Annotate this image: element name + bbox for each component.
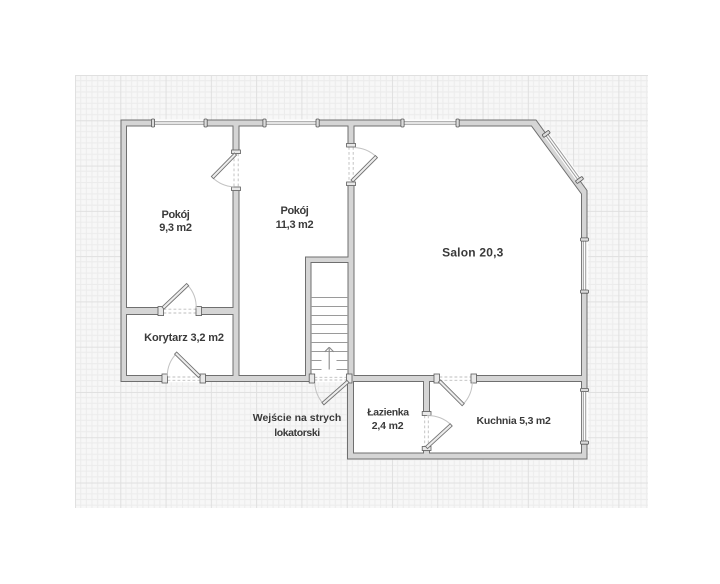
svg-text:Kuchnia 5,3 m2: Kuchnia 5,3 m2 [476, 415, 551, 427]
svg-text:Pokój: Pokój [281, 205, 309, 217]
svg-text:11,3 m2: 11,3 m2 [276, 219, 314, 231]
svg-text:Łazienka: Łazienka [367, 407, 409, 419]
svg-text:lokatorski: lokatorski [274, 427, 320, 439]
svg-text:Pokój: Pokój [162, 209, 190, 221]
svg-text:2,4 m2: 2,4 m2 [372, 420, 404, 432]
svg-text:Korytarz 3,2 m2: Korytarz 3,2 m2 [144, 332, 224, 344]
svg-text:9,3 m2: 9,3 m2 [159, 222, 192, 234]
svg-text:Wejście na strych: Wejście na strych [253, 412, 342, 424]
svg-text:Salon 20,3: Salon 20,3 [442, 246, 503, 260]
